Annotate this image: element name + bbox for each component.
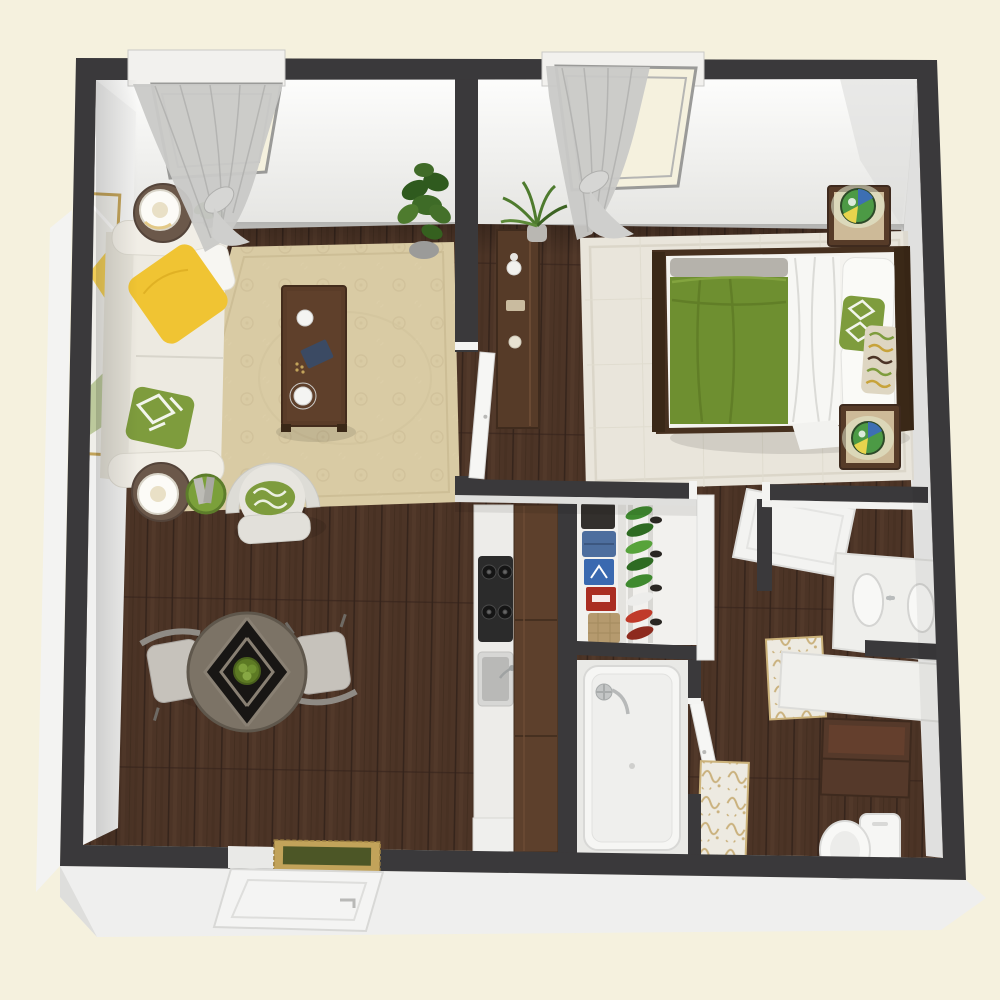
pot xyxy=(409,241,439,259)
closet xyxy=(577,497,697,645)
cabinet-top xyxy=(828,725,905,756)
console-table xyxy=(497,230,539,428)
kitchen xyxy=(473,505,558,852)
mid-wall-east xyxy=(762,484,928,503)
folded-gray-blanket xyxy=(670,258,788,277)
damask-runner-long xyxy=(697,761,749,871)
nightstand-bottom xyxy=(840,405,900,469)
chair-front xyxy=(237,511,311,544)
zigzag-accent-pillow xyxy=(861,325,900,395)
side-table-bottom xyxy=(132,463,190,521)
closet-side-white-wall xyxy=(697,495,714,660)
doormat-center xyxy=(283,846,371,866)
lamp-glint xyxy=(848,198,856,206)
white-vase xyxy=(507,261,521,275)
flush-button xyxy=(872,822,888,826)
wood-cabinet xyxy=(821,718,912,797)
coffee-table xyxy=(276,286,356,442)
hall-divider xyxy=(757,499,772,591)
kitchen-sink xyxy=(478,652,515,706)
table-foot-left xyxy=(281,424,291,432)
doormat xyxy=(274,840,381,872)
footboard xyxy=(652,252,665,432)
vase-neck xyxy=(510,253,518,261)
bathtub-shower xyxy=(584,666,680,850)
coffee-cup-2 xyxy=(294,387,312,405)
apple xyxy=(239,664,248,673)
candle xyxy=(509,336,521,348)
box-label xyxy=(592,595,610,602)
tiffany-lamp xyxy=(852,422,884,454)
front-door xyxy=(214,869,383,931)
book-stack xyxy=(506,300,525,311)
kitchen-closet-divider xyxy=(558,495,577,856)
cabinet-run xyxy=(514,505,558,852)
bath-partition-lower xyxy=(688,794,701,856)
floor-plan-rendering xyxy=(0,0,1000,1000)
tiffany-lamp xyxy=(841,189,875,223)
denim-stack xyxy=(582,531,616,557)
burlap-basket xyxy=(588,613,620,643)
green-duvet xyxy=(670,277,788,424)
entry xyxy=(214,840,383,931)
window-sill xyxy=(128,50,285,86)
left-wall-shadow xyxy=(96,80,138,845)
coffee-cup-1 xyxy=(297,310,313,326)
table-foot-right xyxy=(337,424,347,432)
lamp-inner xyxy=(150,486,166,502)
red-box xyxy=(586,587,616,611)
partition-living-bedroom xyxy=(455,74,478,352)
dining-table xyxy=(188,613,306,731)
appliance xyxy=(473,818,516,852)
apple xyxy=(243,672,252,681)
magazine-basket xyxy=(187,475,225,513)
bath-partition-upper xyxy=(688,660,701,702)
pot xyxy=(527,224,547,242)
lamp-inner xyxy=(152,202,168,218)
nightstand-top xyxy=(828,184,890,246)
drain xyxy=(629,763,635,769)
blue-box xyxy=(584,559,614,585)
